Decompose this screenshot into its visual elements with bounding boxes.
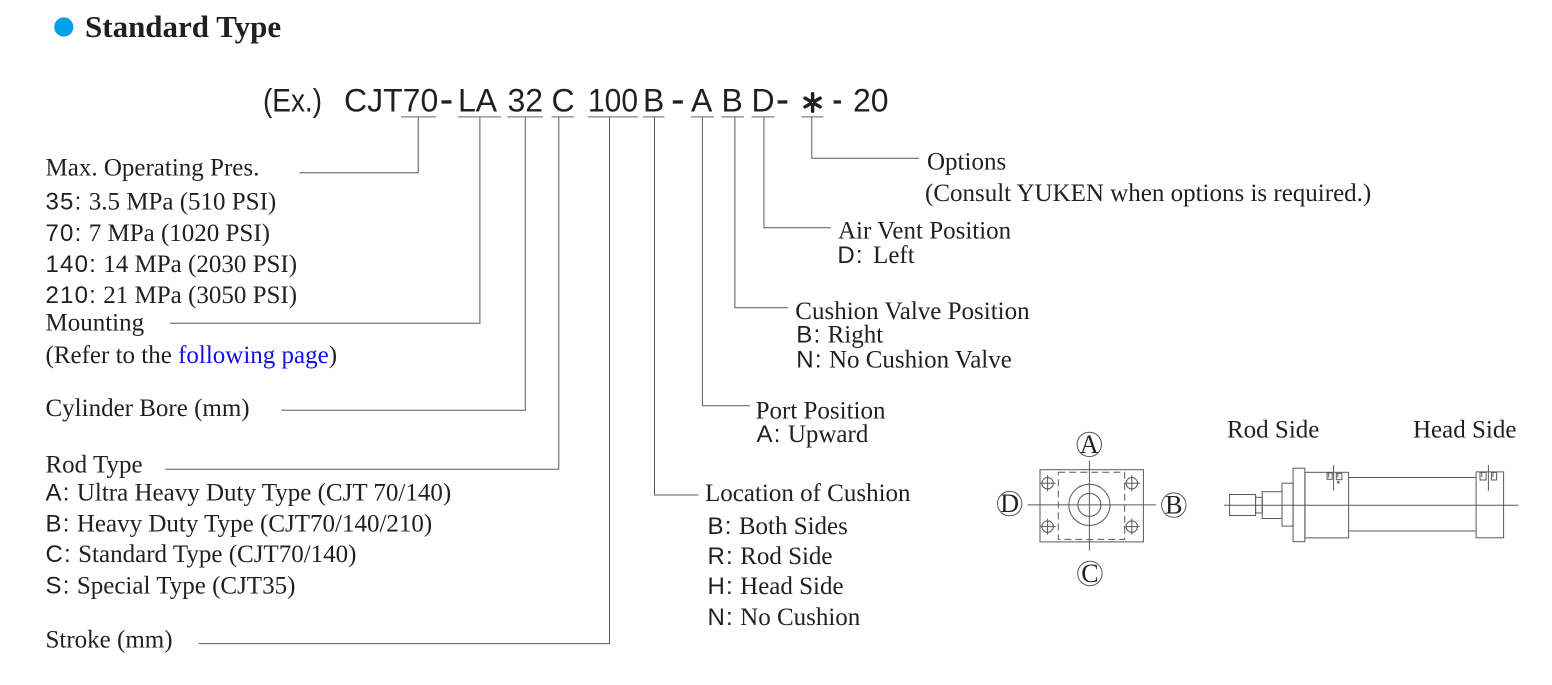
svg-text:Air Vent Position: Air Vent Position (838, 217, 1012, 244)
svg-text:R: Rod Side: R: Rod Side (708, 543, 833, 570)
svg-text:140: 14 MPa (2030 PSI): 140: 14 MPa (2030 PSI) (46, 251, 298, 278)
svg-text:(Refer to the following page): (Refer to the following page) (46, 342, 338, 369)
svg-text:A: A (1080, 430, 1099, 459)
svg-text:Rod Side: Rod Side (1227, 416, 1319, 443)
svg-text:B: Both Sides: B: Both Sides (708, 513, 848, 540)
svg-text:C: Standard Type (CJT70/140): C: Standard Type (CJT70/140) (46, 541, 357, 568)
svg-text:A: Upward: A: Upward (757, 421, 869, 448)
svg-text:210: 21 MPa (3050 PSI): 210: 21 MPa (3050 PSI) (46, 282, 298, 309)
svg-text:Mounting: Mounting (46, 310, 145, 337)
svg-text:70: 7 MPa (1020 PSI): 70: 7 MPa (1020 PSI) (46, 220, 270, 247)
svg-text:S: Special Type (CJT35): S: Special Type (CJT35) (46, 572, 296, 599)
svg-text:B: Right: B: Right (796, 322, 883, 349)
svg-text:100: 100 (588, 83, 638, 119)
svg-text:B: Heavy Duty Type (CJT70/140/: B: Heavy Duty Type (CJT70/140/210) (46, 511, 433, 538)
svg-text:B: B (722, 83, 743, 119)
svg-text:A: Ultra Heavy Duty Type (CJT: A: Ultra Heavy Duty Type (CJT 70/140) (46, 479, 452, 506)
svg-text:Head Side: Head Side (1413, 416, 1516, 443)
svg-text:LA: LA (458, 83, 498, 119)
svg-text:H: Head Side: H: Head Side (708, 573, 844, 600)
svg-text:(Consult YUKEN when options is: (Consult YUKEN when options is required.… (925, 180, 1371, 207)
svg-text:D: Left: D: Left (837, 242, 914, 269)
svg-text:N: No Cushion Valve: N: No Cushion Valve (796, 346, 1012, 373)
svg-text:Options: Options (927, 149, 1006, 176)
svg-text:Standard Type: Standard Type (85, 9, 281, 44)
svg-text:Cylinder Bore (mm): Cylinder Bore (mm) (46, 395, 250, 422)
svg-text:D: D (752, 83, 775, 119)
svg-text:N: No Cushion: N: No Cushion (708, 604, 861, 631)
svg-text:A: A (691, 83, 713, 119)
svg-text:C: C (1081, 559, 1098, 588)
svg-text:Stroke (mm): Stroke (mm) (46, 626, 173, 653)
svg-text:B: B (643, 83, 664, 119)
svg-text:35: 3.5 MPa (510 PSI): 35: 3.5 MPa (510 PSI) (46, 189, 277, 216)
svg-text:B: B (1165, 491, 1182, 520)
svg-text:CJT70: CJT70 (344, 83, 438, 119)
svg-text:D: D (1000, 489, 1019, 518)
svg-text:32: 32 (508, 83, 544, 119)
svg-text:Rod Type: Rod Type (46, 452, 143, 479)
svg-text:Max. Operating Pres.: Max. Operating Pres. (46, 155, 260, 182)
svg-text:Location of Cushion: Location of Cushion (705, 480, 911, 507)
svg-text:20: 20 (853, 83, 889, 119)
svg-text:(Ex.): (Ex.) (263, 83, 322, 119)
svg-text:C: C (552, 83, 575, 119)
